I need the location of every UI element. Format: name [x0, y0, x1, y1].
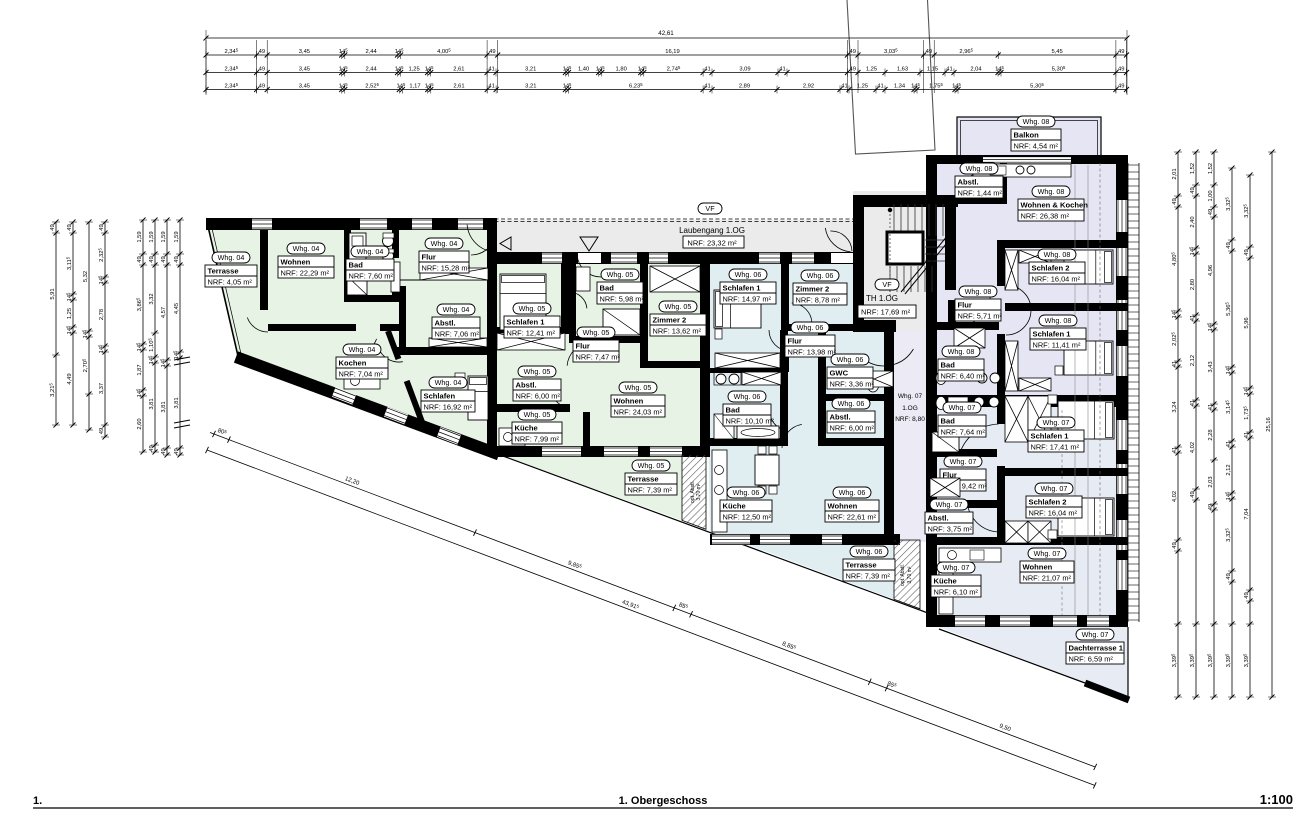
svg-text:2,61: 2,61: [453, 67, 464, 73]
svg-text:3,115: 3,115: [66, 256, 74, 270]
svg-text:3,395: 3,395: [1243, 653, 1251, 667]
svg-text:16,19: 16,19: [665, 49, 680, 55]
svg-text:49: 49: [1172, 542, 1178, 548]
svg-text:2,965: 2,965: [959, 48, 973, 56]
svg-text:Bad: Bad: [600, 284, 615, 293]
svg-text:3,32: 3,32: [149, 293, 155, 304]
svg-text:Terrasse: Terrasse: [208, 267, 239, 276]
svg-text:42,61: 42,61: [658, 30, 674, 37]
svg-text:49: 49: [849, 67, 855, 73]
svg-text:49: 49: [161, 256, 167, 262]
svg-text:6,235: 6,235: [629, 82, 643, 90]
svg-text:49: 49: [489, 49, 495, 55]
svg-text:NRF: 8,78 m²: NRF: 8,78 m²: [796, 296, 841, 305]
svg-text:49: 49: [1226, 573, 1232, 579]
svg-text:2,705: 2,705: [82, 358, 90, 372]
svg-text:Whg. 05: Whg. 05: [583, 328, 610, 337]
svg-text:Whg. 07: Whg. 07: [1041, 484, 1068, 493]
svg-text:3,21: 3,21: [525, 84, 536, 90]
svg-text:Wohnen: Wohnen: [1023, 563, 1053, 572]
svg-text:145: 145: [995, 65, 1004, 73]
svg-text:Whg. 06: Whg. 06: [735, 270, 762, 279]
svg-text:Whg. 05: Whg. 05: [638, 461, 665, 470]
svg-text:NRF: 7,99 m²: NRF: 7,99 m²: [515, 435, 560, 444]
svg-text:49: 49: [1118, 67, 1124, 73]
svg-text:49: 49: [259, 84, 265, 90]
svg-text:3,81: 3,81: [174, 397, 180, 408]
svg-text:Zimmer 2: Zimmer 2: [653, 316, 687, 325]
svg-text:1.: 1.: [33, 795, 42, 807]
svg-text:5,305: 5,305: [1030, 82, 1044, 90]
svg-text:Dachterrasse 1: Dachterrasse 1: [1069, 644, 1124, 653]
svg-text:Whg. 06: Whg. 06: [734, 392, 761, 401]
svg-text:NRF: 14,97 m²: NRF: 14,97 m²: [723, 295, 772, 304]
svg-text:145: 145: [638, 65, 647, 73]
svg-text:3,70 m²: 3,70 m²: [907, 566, 913, 583]
svg-text:2,345: 2,345: [224, 65, 238, 73]
svg-text:145: 145: [1171, 309, 1179, 318]
svg-text:1,15: 1,15: [927, 67, 938, 73]
svg-text:2,89: 2,89: [739, 84, 750, 90]
svg-text:5,305: 5,305: [1052, 65, 1066, 73]
svg-text:NRF: 11,41 m²: NRF: 11,41 m²: [1033, 341, 1081, 350]
svg-text:5,365: 5,365: [1225, 302, 1233, 316]
svg-text:1,40: 1,40: [578, 67, 589, 73]
svg-text:opt. Abstl.: opt. Abstl.: [900, 564, 906, 586]
svg-text:4,02: 4,02: [1190, 442, 1196, 453]
svg-text:NRF: 15,28 m²: NRF: 15,28 m²: [422, 264, 471, 273]
svg-text:NRF: 7,47 m²: NRF: 7,47 m²: [576, 353, 621, 362]
svg-text:2,025: 2,025: [1171, 332, 1179, 346]
svg-text:Whg. 08: Whg. 08: [1023, 117, 1050, 126]
svg-text:25,16: 25,16: [1266, 417, 1272, 432]
svg-text:41: 41: [779, 67, 785, 73]
svg-text:145: 145: [136, 342, 144, 351]
svg-text:Whg. 06: Whg. 06: [839, 488, 866, 497]
svg-text:41: 41: [946, 67, 952, 73]
svg-text:49: 49: [1172, 198, 1178, 204]
svg-text:Whg. 07: Whg. 07: [1043, 418, 1070, 427]
svg-text:49: 49: [137, 256, 143, 262]
svg-text:145: 145: [148, 355, 156, 364]
svg-text:1,17: 1,17: [409, 84, 420, 90]
svg-text:145: 145: [563, 82, 572, 90]
svg-text:Abstl.: Abstl.: [928, 514, 949, 523]
svg-text:49: 49: [1118, 49, 1124, 55]
svg-text:Whg. 05: Whg. 05: [519, 304, 546, 313]
svg-text:Whg. 05: Whg. 05: [625, 383, 652, 392]
svg-text:41: 41: [488, 67, 494, 73]
svg-text:Whg. 06: Whg. 06: [838, 399, 865, 408]
svg-text:NRF: 7,39 m²: NRF: 7,39 m²: [846, 572, 891, 581]
svg-text:4,02: 4,02: [1172, 491, 1178, 502]
svg-text:3,325: 3,325: [1225, 528, 1233, 542]
svg-text:Whg. 07: Whg. 07: [898, 393, 923, 400]
svg-text:Whg. 08: Whg. 08: [1045, 316, 1072, 325]
svg-text:5,32: 5,32: [83, 271, 89, 282]
svg-text:VF: VF: [705, 204, 715, 213]
svg-text:145: 145: [98, 275, 106, 284]
svg-text:NRF: 4,54 m²: NRF: 4,54 m²: [1014, 142, 1059, 151]
svg-text:49: 49: [1244, 592, 1250, 598]
svg-text:3,43: 3,43: [1208, 361, 1214, 372]
svg-text:Whg. 07: Whg. 07: [936, 500, 963, 509]
svg-text:Abstl.: Abstl.: [516, 381, 537, 390]
svg-text:43,915: 43,915: [621, 598, 641, 611]
svg-text:2,60: 2,60: [137, 418, 143, 429]
svg-text:2,745: 2,745: [667, 65, 681, 73]
svg-text:1,63: 1,63: [897, 67, 908, 73]
svg-text:49: 49: [1208, 504, 1214, 510]
svg-text:Whg. 08: Whg. 08: [1044, 250, 1071, 259]
svg-text:2,80: 2,80: [1190, 279, 1196, 290]
svg-text:NRF: 22,29 m²: NRF: 22,29 m²: [281, 269, 330, 278]
svg-text:NRF: 4,05 m²: NRF: 4,05 m²: [208, 278, 253, 287]
svg-text:Abstl.: Abstl.: [435, 319, 456, 328]
svg-text:145: 145: [425, 65, 434, 73]
svg-text:Whg. 08: Whg. 08: [948, 347, 975, 356]
svg-text:49: 49: [161, 448, 167, 454]
svg-text:1,52: 1,52: [1190, 163, 1196, 174]
svg-text:1,59: 1,59: [137, 231, 143, 242]
svg-text:1,00: 1,00: [1208, 190, 1214, 201]
svg-text:GWC: GWC: [830, 369, 849, 378]
svg-text:4,005: 4,005: [437, 48, 451, 56]
svg-text:Whg. 07: Whg. 07: [949, 403, 976, 412]
svg-text:Abstl.: Abstl.: [958, 178, 979, 187]
svg-text:Whg. 04: Whg. 04: [435, 378, 462, 387]
svg-text:49: 49: [1208, 209, 1214, 215]
svg-text:1,59: 1,59: [174, 231, 180, 242]
svg-text:3,395: 3,395: [1189, 653, 1197, 667]
svg-text:3,325: 3,325: [1225, 197, 1233, 211]
svg-text:41: 41: [704, 67, 710, 73]
svg-text:49: 49: [99, 428, 105, 434]
svg-text:3,215: 3,215: [49, 383, 57, 397]
svg-text:145: 145: [425, 82, 434, 90]
svg-text:Whg. 07: Whg. 07: [1082, 630, 1109, 639]
svg-text:2,44: 2,44: [365, 67, 377, 73]
svg-text:Whg. 05: Whg. 05: [524, 367, 551, 376]
svg-text:Schlafen 2: Schlafen 2: [1029, 498, 1067, 507]
svg-text:Whg. 06: Whg. 06: [837, 355, 864, 364]
svg-text:145: 145: [160, 358, 168, 367]
svg-text:Whg. 05: Whg. 05: [524, 410, 551, 419]
svg-text:49: 49: [1226, 242, 1232, 248]
svg-text:Terrasse: Terrasse: [846, 561, 877, 570]
svg-text:5,96: 5,96: [1244, 317, 1250, 328]
svg-text:Whg. 07: Whg. 07: [943, 563, 970, 572]
svg-text:TH 1.OG: TH 1.OG: [866, 294, 898, 303]
svg-text:Whg. 06: Whg. 06: [856, 547, 883, 556]
svg-text:2,345: 2,345: [224, 82, 238, 90]
svg-text:12,20: 12,20: [344, 476, 361, 487]
svg-text:NRF: 17,69 m²: NRF: 17,69 m²: [861, 308, 911, 317]
svg-text:Bad: Bad: [941, 361, 956, 370]
svg-text:1,59: 1,59: [161, 231, 167, 242]
svg-text:3,81: 3,81: [149, 398, 155, 409]
svg-text:Flur: Flur: [788, 337, 802, 346]
svg-text:145: 145: [339, 82, 348, 90]
svg-text:Zimmer 2: Zimmer 2: [796, 285, 830, 294]
svg-text:NRF: 6,59 m²: NRF: 6,59 m²: [1069, 655, 1114, 664]
svg-text:2,12: 2,12: [1190, 355, 1196, 366]
svg-text:NRF: 24,03 m²: NRF: 24,03 m²: [614, 408, 663, 417]
svg-text:NRF: 21,07 m²: NRF: 21,07 m²: [1023, 574, 1072, 583]
svg-text:145: 145: [1225, 365, 1233, 374]
svg-text:Schlafen: Schlafen: [424, 392, 456, 401]
svg-text:NRF: 16,04 m²: NRF: 16,04 m²: [1032, 275, 1081, 284]
svg-text:NRF: 3,75 m²: NRF: 3,75 m²: [928, 525, 973, 534]
svg-text:5,91: 5,91: [50, 288, 56, 299]
svg-text:49: 49: [149, 445, 155, 451]
svg-text:Schlafen 1: Schlafen 1: [1033, 330, 1072, 339]
svg-text:NRF: 23,32 m²: NRF: 23,32 m²: [687, 239, 737, 248]
svg-text:3,45: 3,45: [299, 84, 310, 90]
svg-text:NRF: 16,92 m²: NRF: 16,92 m²: [424, 403, 473, 412]
svg-text:VF: VF: [882, 280, 892, 289]
svg-text:1,25: 1,25: [857, 84, 868, 90]
svg-text:2,525: 2,525: [365, 82, 379, 90]
svg-text:1,59: 1,59: [149, 231, 155, 242]
svg-text:NRF: 6,10 m²: NRF: 6,10 m²: [934, 588, 979, 597]
svg-text:NRF: 13,62 m²: NRF: 13,62 m²: [653, 327, 702, 336]
svg-text:3,395: 3,395: [1225, 653, 1233, 667]
svg-text:9,50: 9,50: [998, 723, 1012, 733]
svg-text:Bad: Bad: [726, 406, 741, 415]
svg-text:2,325: 2,325: [98, 248, 106, 262]
svg-text:Whg. 04: Whg. 04: [431, 239, 458, 248]
svg-text:1,80: 1,80: [616, 67, 627, 73]
svg-text:Flur: Flur: [422, 253, 436, 262]
svg-text:2,12: 2,12: [1226, 464, 1232, 475]
svg-text:49: 49: [99, 224, 105, 230]
svg-text:145: 145: [563, 65, 572, 73]
svg-text:145: 145: [395, 48, 404, 56]
svg-text:3,395: 3,395: [1171, 653, 1179, 667]
svg-text:49: 49: [1118, 84, 1124, 90]
svg-text:1,87: 1,87: [137, 364, 143, 375]
svg-text:1,25: 1,25: [67, 308, 73, 319]
svg-text:145: 145: [66, 292, 74, 301]
svg-text:49: 49: [67, 224, 73, 230]
svg-text:NRF: 5,98 m²: NRF: 5,98 m²: [600, 295, 645, 304]
svg-text:2,61: 2,61: [453, 84, 464, 90]
svg-text:NRF: 7,06 m²: NRF: 7,06 m²: [435, 330, 480, 339]
svg-text:41: 41: [1244, 432, 1250, 438]
svg-text:Bad: Bad: [941, 417, 956, 426]
svg-text:3,035: 3,035: [884, 48, 898, 56]
svg-text:NRF: 17,41 m²: NRF: 17,41 m²: [1031, 443, 1080, 452]
svg-text:7,04: 7,04: [1244, 508, 1250, 520]
svg-text:1,735: 1,735: [1243, 406, 1251, 420]
svg-text:9,855: 9,855: [567, 559, 583, 571]
svg-text:Bad: Bad: [349, 261, 364, 270]
svg-text:49: 49: [174, 256, 180, 262]
svg-text:Whg. 04: Whg. 04: [349, 345, 376, 354]
svg-text:Schlafen 1: Schlafen 1: [723, 284, 762, 293]
svg-text:NRF: 1,44 m²: NRF: 1,44 m²: [958, 189, 1003, 198]
svg-text:49: 49: [926, 49, 932, 55]
svg-text:NRF: 13,98 m²: NRF: 13,98 m²: [788, 348, 837, 357]
svg-text:145: 145: [98, 344, 106, 353]
svg-text:1,25: 1,25: [408, 67, 419, 73]
svg-text:41: 41: [1172, 361, 1178, 367]
svg-text:Whg. 04: Whg. 04: [443, 305, 470, 314]
svg-text:NRF: 6,00 m²: NRF: 6,00 m²: [516, 392, 561, 401]
svg-text:5,45: 5,45: [1051, 49, 1062, 55]
svg-text:Wohnen & Kochen: Wohnen & Kochen: [1021, 201, 1089, 210]
svg-text:4,57: 4,57: [161, 307, 167, 318]
svg-text:41: 41: [1208, 404, 1214, 410]
svg-text:2,01: 2,01: [1172, 168, 1178, 179]
svg-text:NRF: 7,04 m²: NRF: 7,04 m²: [339, 370, 384, 379]
svg-text:Whg. 06: Whg. 06: [797, 323, 824, 332]
svg-text:2,92: 2,92: [803, 84, 814, 90]
svg-text:1.OG: 1.OG: [902, 405, 918, 412]
svg-text:41: 41: [1190, 400, 1196, 406]
svg-text:Whg. 07: Whg. 07: [1034, 549, 1061, 558]
svg-text:1. Obergeschoss: 1. Obergeschoss: [619, 795, 708, 807]
svg-text:NRF: 8,80: NRF: 8,80: [895, 416, 925, 423]
svg-text:145: 145: [339, 65, 348, 73]
svg-text:1,755: 1,755: [929, 82, 943, 90]
svg-text:145: 145: [173, 350, 181, 359]
svg-text:1,25: 1,25: [866, 67, 877, 73]
svg-text:3,395: 3,395: [1207, 653, 1215, 667]
svg-text:Küche: Küche: [723, 502, 746, 511]
svg-text:145: 145: [952, 82, 961, 90]
svg-text:1,52: 1,52: [1208, 163, 1214, 174]
svg-text:1,34: 1,34: [894, 84, 906, 90]
svg-text:2,40: 2,40: [1190, 216, 1196, 227]
svg-text:Whg. 06: Whg. 06: [733, 488, 760, 497]
svg-text:3,24: 3,24: [1172, 401, 1178, 413]
svg-text:49: 49: [849, 49, 855, 55]
svg-text:NRF: 5,71 m²: NRF: 5,71 m²: [958, 312, 1003, 321]
svg-text:Whg. 08: Whg. 08: [965, 287, 992, 296]
svg-text:49: 49: [1244, 249, 1250, 255]
svg-text:49: 49: [50, 224, 56, 230]
svg-text:49: 49: [174, 448, 180, 454]
svg-text:41: 41: [841, 84, 847, 90]
svg-text:Whg. 06: Whg. 06: [807, 271, 834, 280]
svg-text:145: 145: [1189, 246, 1197, 255]
svg-text:NRF: 3,36 m²: NRF: 3,36 m²: [830, 380, 875, 389]
svg-text:NRF: 12,50 m²: NRF: 12,50 m²: [723, 513, 772, 522]
svg-text:Schlafen 1: Schlafen 1: [507, 318, 546, 327]
svg-text:2,03: 2,03: [1208, 476, 1214, 487]
svg-text:NRF: 10,10 m²: NRF: 10,10 m²: [726, 417, 775, 426]
svg-text:145: 145: [82, 329, 90, 338]
svg-text:2,04: 2,04: [970, 67, 982, 73]
svg-text:1,105: 1,105: [148, 338, 156, 352]
svg-text:NRF: 6,40 m²: NRF: 6,40 m²: [941, 372, 986, 381]
svg-text:Kochen: Kochen: [339, 359, 367, 368]
svg-text:4,49: 4,49: [67, 373, 73, 384]
svg-text:3,145: 3,145: [1225, 400, 1233, 414]
svg-text:Whg. 04: Whg. 04: [218, 253, 245, 262]
svg-text:Whg. 08: Whg. 08: [1038, 187, 1065, 196]
svg-text:NRF: 7,64 m²: NRF: 7,64 m²: [941, 428, 986, 437]
svg-text:3,865: 3,865: [136, 297, 144, 311]
svg-text:NRF: 16,04 m²: NRF: 16,04 m²: [1029, 509, 1078, 518]
svg-text:NRF: 7,39 m²: NRF: 7,39 m²: [628, 486, 673, 495]
svg-text:49: 49: [259, 67, 265, 73]
svg-text:145: 145: [1225, 491, 1233, 500]
svg-text:NRF: 7,60 m²: NRF: 7,60 m²: [349, 272, 394, 281]
svg-text:Küche: Küche: [515, 424, 538, 433]
svg-text:145: 145: [1207, 322, 1215, 331]
svg-text:Balkon: Balkon: [1014, 131, 1040, 140]
svg-text:Whg. 05: Whg. 05: [665, 302, 692, 311]
svg-text:NRF: 12,41 m²: NRF: 12,41 m²: [507, 329, 556, 338]
svg-text:2,78: 2,78: [99, 309, 105, 320]
svg-text:Whg. 05: Whg. 05: [607, 270, 634, 279]
svg-text:8,855: 8,855: [781, 640, 797, 652]
svg-text:NRF: 26,38 m²: NRF: 26,38 m²: [1021, 212, 1070, 221]
svg-text:145: 145: [1243, 386, 1251, 395]
svg-text:2,44: 2,44: [365, 49, 377, 55]
svg-text:41: 41: [1172, 447, 1178, 453]
svg-text:1:100: 1:100: [1260, 792, 1293, 807]
svg-text:Flur: Flur: [958, 301, 972, 310]
svg-text:3,37: 3,37: [99, 383, 105, 394]
svg-text:145: 145: [395, 65, 404, 73]
svg-text:2,28: 2,28: [1208, 429, 1214, 440]
svg-text:3,325: 3,325: [1243, 204, 1251, 218]
svg-text:3,45: 3,45: [299, 67, 310, 73]
svg-text:145: 145: [339, 48, 348, 56]
svg-text:Küche: Küche: [934, 577, 957, 586]
svg-text:Wohnen: Wohnen: [828, 502, 858, 511]
svg-text:Schlafen 2: Schlafen 2: [1032, 264, 1070, 273]
svg-text:Abstl.: Abstl.: [830, 413, 851, 422]
svg-text:Schlafen 1: Schlafen 1: [1031, 432, 1070, 441]
svg-text:4,805: 4,805: [1171, 252, 1179, 266]
svg-text:41: 41: [1190, 315, 1196, 321]
svg-text:145: 145: [911, 82, 920, 90]
svg-text:Laubengang 1.OG: Laubengang 1.OG: [679, 226, 745, 235]
svg-text:145: 145: [596, 65, 605, 73]
svg-text:3,70 m²: 3,70 m²: [696, 483, 702, 500]
svg-text:Flur: Flur: [576, 342, 590, 351]
svg-text:4,45: 4,45: [174, 303, 180, 314]
svg-text:49: 49: [259, 49, 265, 55]
svg-text:49: 49: [149, 256, 155, 262]
svg-text:41: 41: [704, 84, 710, 90]
svg-text:Whg. 08: Whg. 08: [966, 164, 993, 173]
svg-text:3,21: 3,21: [525, 67, 536, 73]
svg-text:2,345: 2,345: [224, 48, 238, 56]
svg-text:49: 49: [1190, 491, 1196, 497]
svg-text:Wohnen: Wohnen: [614, 397, 644, 406]
svg-text:Whg. 07: Whg. 07: [950, 457, 977, 466]
svg-text:41: 41: [1226, 441, 1232, 447]
svg-text:NRF: 22,61 m²: NRF: 22,61 m²: [828, 513, 877, 522]
svg-text:Whg. 04: Whg. 04: [357, 247, 384, 256]
svg-text:145: 145: [397, 82, 406, 90]
svg-text:145: 145: [66, 325, 74, 334]
svg-text:49: 49: [1190, 187, 1196, 193]
svg-text:Wohnen: Wohnen: [281, 258, 311, 267]
svg-text:3,45: 3,45: [299, 49, 310, 55]
svg-text:4,96: 4,96: [1208, 265, 1214, 276]
svg-text:41: 41: [877, 84, 883, 90]
svg-text:Terrasse: Terrasse: [628, 475, 659, 484]
svg-text:41: 41: [488, 84, 494, 90]
svg-text:Whg. 04: Whg. 04: [293, 244, 320, 253]
